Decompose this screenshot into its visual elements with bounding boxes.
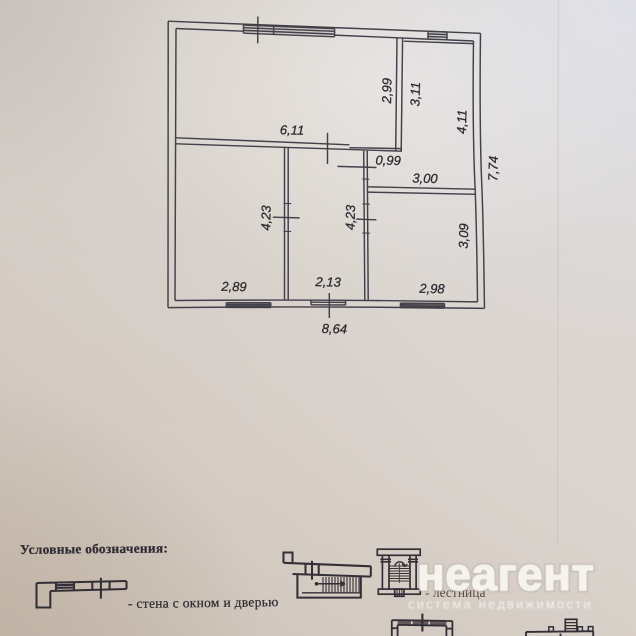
svg-text:4,23: 4,23 [342,204,358,230]
svg-text:2,98: 2,98 [418,281,445,297]
svg-text:4,23: 4,23 [258,204,274,230]
svg-text:2,13: 2,13 [314,274,341,290]
svg-text:2,99: 2,99 [379,78,395,105]
svg-text:4,11: 4,11 [454,109,470,134]
svg-text:- стена с окном и дверью: - стена с окном и дверью [128,594,279,611]
svg-text:6,11: 6,11 [280,122,305,138]
svg-text:3,00: 3,00 [412,170,438,186]
svg-text:0,99: 0,99 [375,152,401,168]
svg-text:8,64: 8,64 [322,321,348,337]
svg-text:неагент: неагент [417,548,595,600]
svg-text:7,74: 7,74 [485,156,501,182]
svg-text:3,09: 3,09 [456,223,472,249]
svg-text:Условные обозначения:: Условные обозначения: [20,540,168,557]
svg-text:система недвижимости: система недвижимости [408,597,593,612]
svg-text:2,89: 2,89 [220,279,247,295]
svg-text:3,11: 3,11 [407,82,423,107]
